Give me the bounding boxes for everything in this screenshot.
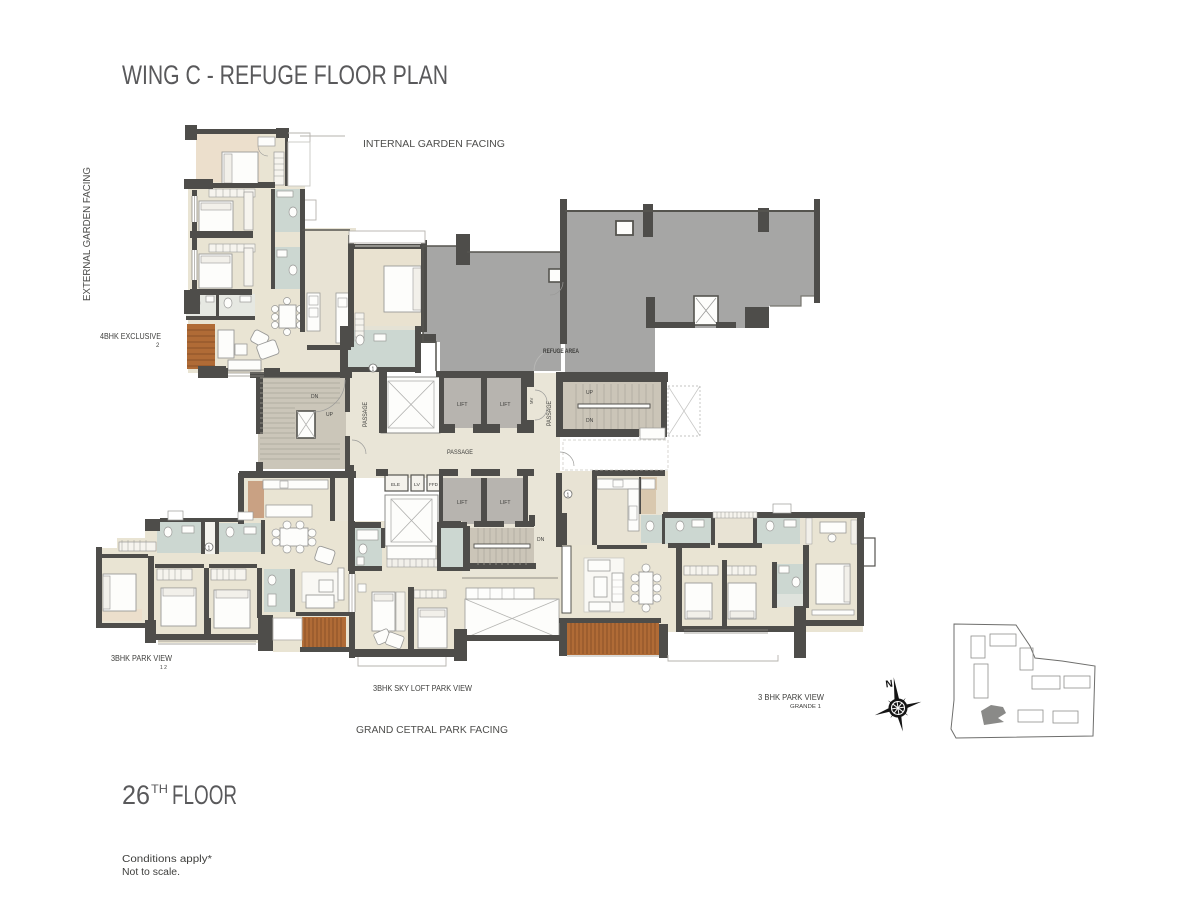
- svg-text:FFD: FFD: [429, 482, 439, 487]
- svg-text:GRAND CETRAL PARK FACING: GRAND CETRAL PARK FACING: [356, 725, 508, 736]
- svg-text:LIFT: LIFT: [500, 500, 511, 506]
- svg-text:TH: TH: [151, 782, 168, 796]
- svg-text:GRANDE 1: GRANDE 1: [790, 704, 821, 710]
- svg-text:4BHK EXCLUSIVE: 4BHK EXCLUSIVE: [100, 332, 161, 341]
- svg-text:N: N: [885, 679, 894, 691]
- svg-text:LV: LV: [414, 482, 420, 487]
- svg-text:PASSAGE: PASSAGE: [547, 401, 553, 426]
- svg-text:ELE: ELE: [391, 482, 400, 487]
- svg-text:INTERNAL GARDEN FACING: INTERNAL GARDEN FACING: [363, 139, 505, 150]
- svg-text:UP: UP: [326, 412, 334, 418]
- svg-text:UP: UP: [586, 390, 594, 396]
- svg-text:1: 1: [567, 493, 570, 499]
- svg-text:DN: DN: [537, 537, 545, 543]
- svg-text:LIFT: LIFT: [500, 402, 511, 408]
- svg-text:REFUGE AREA: REFUGE AREA: [543, 348, 579, 355]
- svg-text:MV: MV: [529, 398, 534, 404]
- svg-text:Not to scale.: Not to scale.: [122, 867, 180, 878]
- svg-text:LIFT: LIFT: [457, 500, 468, 506]
- svg-text:26: 26: [122, 780, 150, 810]
- svg-text:EXTERNAL GARDEN FACING: EXTERNAL GARDEN FACING: [82, 167, 93, 301]
- svg-text:1: 1: [372, 367, 375, 373]
- svg-text:FLOOR: FLOOR: [172, 780, 237, 810]
- svg-text:3 BHK PARK VIEW: 3 BHK PARK VIEW: [758, 693, 824, 702]
- svg-text:3BHK SKY LOFT PARK VIEW: 3BHK SKY LOFT PARK VIEW: [373, 684, 472, 693]
- svg-text:PASSAGE: PASSAGE: [363, 402, 369, 427]
- svg-text:3BHK PARK VIEW: 3BHK PARK VIEW: [111, 654, 172, 663]
- svg-text:Conditions apply*: Conditions apply*: [122, 854, 212, 865]
- svg-text:1: 1: [208, 546, 211, 552]
- svg-text:PASSAGE: PASSAGE: [447, 449, 474, 456]
- svg-text:DN: DN: [311, 394, 319, 400]
- svg-text:WING C - REFUGE FLOOR PLAN: WING C - REFUGE FLOOR PLAN: [122, 60, 448, 90]
- svg-text:1 2: 1 2: [160, 665, 167, 671]
- svg-text:LIFT: LIFT: [457, 402, 468, 408]
- svg-text:DN: DN: [586, 418, 594, 424]
